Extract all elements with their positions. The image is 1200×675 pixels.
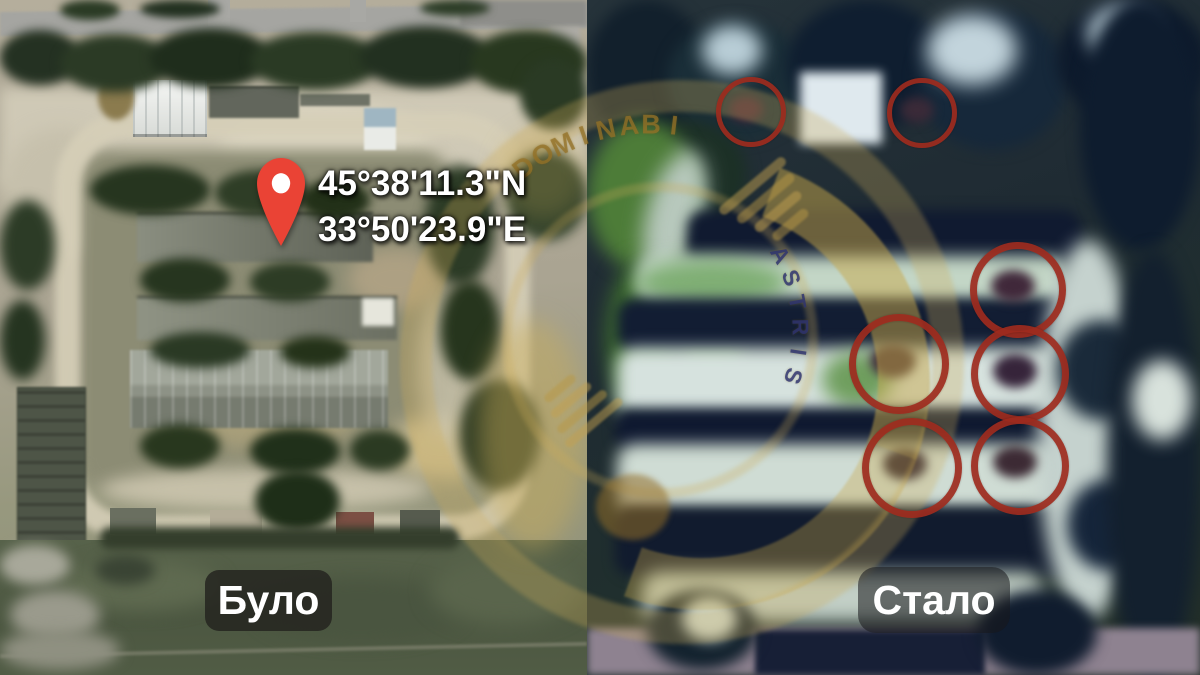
after-label-text: Стало [872, 577, 995, 624]
annotations: 45°38'11.3"N 33°50'23.9"E Було Стало [0, 0, 1200, 675]
coordinate-latitude: 45°38'11.3"N [318, 161, 526, 207]
coordinate-longitude: 33°50'23.9"E [318, 207, 526, 253]
before-label-text: Було [218, 577, 320, 624]
map-pin-icon [257, 158, 305, 246]
before-label: Було [205, 570, 332, 631]
post-image: DOMINABIASTRIS 45°38'11.3"N 33°50'23.9"E… [0, 0, 1200, 675]
after-label: Стало [858, 567, 1010, 633]
coordinates-overlay: 45°38'11.3"N 33°50'23.9"E [318, 161, 526, 253]
